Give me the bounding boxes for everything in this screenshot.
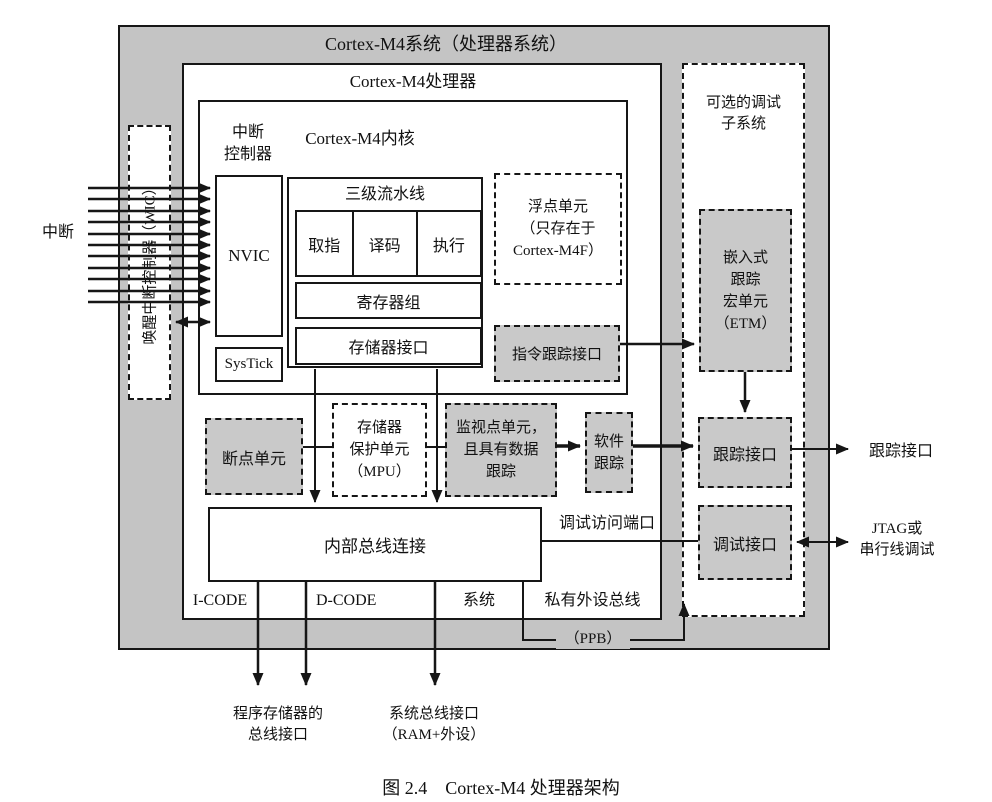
etm-line3: 宏单元 [723, 291, 768, 313]
program-bus-label: 程序存储器的 总线接口 [215, 704, 341, 746]
debug-interface-label: 调试接口 [713, 531, 777, 555]
bus-label-dcode: D-CODE [306, 590, 435, 612]
watchpoint-unit-box: 监视点单元， 且具有数据 跟踪 [445, 403, 557, 497]
interrupt-controller-line1: 中断 [200, 122, 296, 144]
instruction-trace-box: 指令跟踪接口 [494, 325, 620, 382]
mpu-box: 存储器 保护单元 （MPU） [332, 403, 427, 497]
system-title: Cortex-M4系统（处理器系统） [246, 32, 646, 56]
debug-subsystem-title: 可选的调试 子系统 [684, 93, 803, 135]
etm-box: 嵌入式 跟踪 宏单元 （ETM） [699, 209, 792, 372]
interrupts-label: 中断 [26, 222, 90, 244]
bus-label-ppb: 私有外设总线 [523, 588, 662, 614]
interrupt-controller-line2: 控制器 [200, 144, 296, 166]
fpu-line1: 浮点单元 [528, 196, 588, 218]
system-bus-label: 系统总线接口 （RAM+外设） [361, 704, 507, 746]
etm-line2: 跟踪 [730, 269, 760, 291]
breakpoint-unit-box: 断点单元 [205, 418, 303, 495]
program-bus-line1: 程序存储器的 [215, 704, 341, 725]
breakpoint-unit-label: 断点单元 [222, 445, 286, 469]
pipeline-title: 三级流水线 [289, 184, 481, 206]
stage-execute-cell: 执行 [416, 212, 480, 275]
jtag-label: JTAG或 串行线调试 [840, 519, 954, 561]
debug-access-port-label: 调试访问端口 [545, 513, 669, 535]
software-trace-box: 软件 跟踪 [585, 412, 633, 493]
wic-label: 唤醒中断控制器（WIC） [139, 180, 160, 344]
fpu-box: 浮点单元 （只存在于 Cortex-M4F） [494, 173, 622, 285]
register-bank-box: 寄存器组 [295, 282, 482, 319]
memory-interface-label: 存储器接口 [348, 334, 428, 358]
system-bus-line2: （RAM+外设） [361, 725, 507, 746]
mpu-line2: 保护单元 [349, 439, 409, 461]
fpu-line2: （只存在于 [520, 218, 595, 240]
debug-interface-box: 调试接口 [698, 505, 792, 580]
mpu-line3: （MPU） [348, 461, 411, 483]
mpu-line1: 存储器 [357, 417, 402, 439]
bus-label-system: 系统 [435, 588, 523, 614]
system-bus-line1: 系统总线接口 [361, 704, 507, 725]
debug-subsystem-title-line1: 可选的调试 [684, 93, 803, 114]
stage-decode-label: 译码 [369, 232, 401, 256]
bus-label-icode: I-CODE [182, 588, 258, 614]
watchpoint-line3: 跟踪 [486, 461, 516, 483]
instruction-trace-label: 指令跟踪接口 [512, 343, 602, 364]
interrupt-controller-label: 中断 控制器 [200, 122, 296, 166]
register-bank-label: 寄存器组 [356, 289, 420, 313]
cortex-m4-architecture-figure: Cortex-M4系统（处理器系统） Cortex-M4处理器 Cortex-M… [0, 0, 992, 802]
software-trace-line2: 跟踪 [594, 453, 624, 475]
stage-decode-cell: 译码 [352, 212, 416, 275]
internal-bus-box: 内部总线连接 [208, 507, 542, 582]
processor-title: Cortex-M4处理器 [263, 71, 563, 94]
jtag-line2: 串行线调试 [840, 540, 954, 561]
memory-interface-box: 存储器接口 [295, 327, 482, 365]
watchpoint-line1: 监视点单元， [456, 417, 546, 439]
stage-execute-label: 执行 [433, 232, 465, 256]
pipeline-box: 三级流水线 取指 译码 执行 寄存器组 存储器接口 [287, 177, 483, 368]
nvic-box: NVIC [215, 175, 283, 337]
fpu-line3: Cortex-M4F） [513, 240, 603, 262]
trace-out-label: 跟踪接口 [853, 441, 949, 463]
wic-box: 唤醒中断控制器（WIC） [128, 125, 171, 400]
etm-line4: （ETM） [715, 313, 777, 335]
software-trace-line1: 软件 [594, 431, 624, 453]
program-bus-line2: 总线接口 [215, 725, 341, 746]
figure-caption: 图 2.4 Cortex-M4 处理器架构 [300, 776, 702, 800]
jtag-line1: JTAG或 [840, 519, 954, 540]
trace-interface-box: 跟踪接口 [698, 417, 792, 488]
stage-fetch-cell: 取指 [297, 212, 352, 275]
ppb-label: （PPB） [556, 629, 630, 649]
etm-line1: 嵌入式 [723, 247, 768, 269]
pipeline-stages-row: 取指 译码 执行 [295, 210, 482, 277]
systick-label: SysTick [225, 356, 274, 373]
watchpoint-line2: 且具有数据 [463, 439, 538, 461]
systick-box: SysTick [215, 347, 283, 382]
stage-fetch-label: 取指 [308, 232, 340, 256]
internal-bus-label: 内部总线连接 [324, 532, 426, 557]
trace-interface-label: 跟踪接口 [713, 441, 777, 465]
nvic-label: NVIC [228, 246, 270, 266]
debug-subsystem-title-line2: 子系统 [684, 114, 803, 135]
